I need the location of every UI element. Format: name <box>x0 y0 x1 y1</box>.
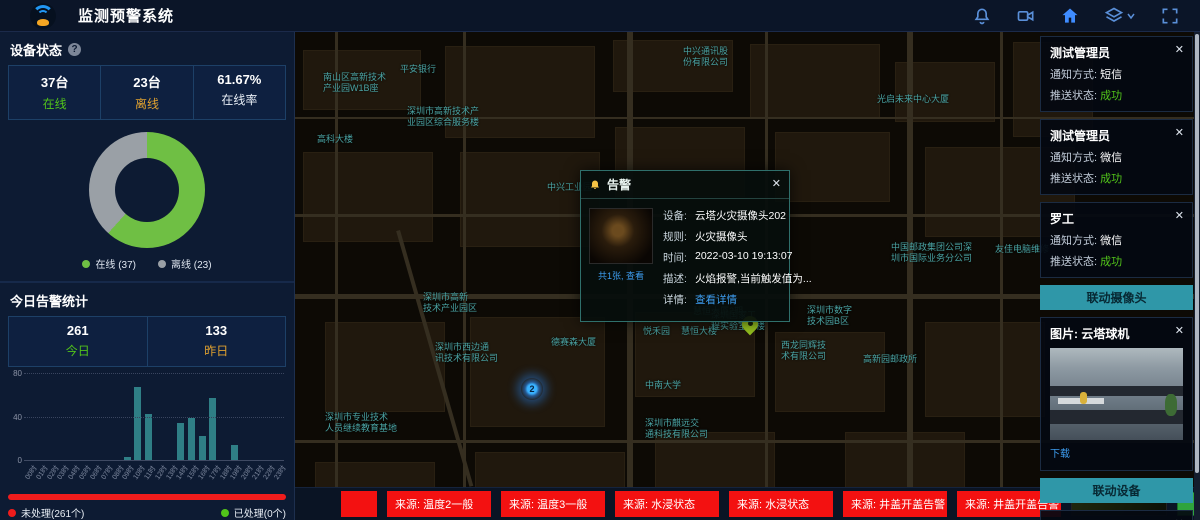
notification-method-row: 通知方式: 微信 <box>1050 149 1183 165</box>
chart-gridline <box>24 373 284 374</box>
hourly-alarm-bar-chart: 80400 <box>24 373 284 461</box>
photo-shape <box>1165 394 1177 416</box>
map-poi-label: 光启未来中心大厦 <box>877 94 949 105</box>
map-poi-label: 中国邮政集团公司深 圳市国际业务分公司 <box>891 242 972 264</box>
field-device: 设备: 云塔火灾摄像头202 <box>663 208 781 223</box>
alert-source-text: 来源: 水浸状态 <box>623 496 695 512</box>
device-status-stats: 37台 在线 23台 离线 61.67% 在线率 <box>8 65 286 120</box>
notification-status-row: 推送状态: 成功 <box>1050 253 1183 269</box>
field-device-value: 云塔火灾摄像头202 <box>695 208 786 223</box>
chevron-down-icon <box>1126 11 1136 21</box>
method-value: 微信 <box>1100 235 1122 247</box>
notification-card: 罗工 ✕ 通知方式: 微信 推送状态: 成功 <box>1040 202 1193 278</box>
legend-offline: 离线 (23) <box>158 256 212 271</box>
status-badge: 成功 <box>1100 90 1122 102</box>
today-alarms-title: 今日告警统计 <box>0 283 294 316</box>
close-icon[interactable]: ✕ <box>1175 43 1184 56</box>
close-icon[interactable]: ✕ <box>1175 324 1184 337</box>
scrollbar-thumb[interactable] <box>1195 34 1199 473</box>
map-block <box>750 44 880 119</box>
legend-online: 在线 (37) <box>82 256 136 271</box>
bar <box>177 423 184 460</box>
map-block <box>460 152 600 247</box>
alarm-popup-titlebar: 告警 ✕ <box>581 171 789 199</box>
map-poi-label: 西龙同辉技 术有限公司 <box>781 340 826 362</box>
bar <box>199 436 206 460</box>
chart-gridline <box>24 417 284 418</box>
field-time-value: 2022-03-10 19:13:07 <box>695 250 793 265</box>
device-cluster-marker[interactable]: 2 <box>521 378 543 400</box>
map-poi-label: 深圳市数字 技术园B区 <box>807 305 852 327</box>
notification-card: 测试管理员 ✕ 通知方式: 微信 推送状态: 成功 <box>1040 119 1193 195</box>
notification-recipient: 罗工 <box>1050 210 1183 227</box>
y-axis-tick: 40 <box>8 413 22 422</box>
stat-online-rate: 61.67% 在线率 <box>194 66 285 119</box>
legend-unprocessed-label: 未处理(261个) <box>21 505 84 520</box>
view-images-link[interactable]: 共1张, 查看 <box>589 269 653 282</box>
stat-today: 261 今日 <box>9 317 148 366</box>
legend-unprocessed: 未处理(261个) <box>8 505 84 520</box>
today-alarms-title-text: 今日告警统计 <box>10 291 88 310</box>
header-bar: 监测预警系统 <box>0 0 1200 32</box>
photo-shape <box>1080 392 1087 404</box>
stat-today-label: 今日 <box>9 342 147 359</box>
legend-processed-label: 已处理(0个) <box>234 505 286 520</box>
alert-source-card[interactable]: 来源: 温度3一般 <box>501 491 605 517</box>
legend-offline-dot <box>158 260 166 268</box>
map-poi-label: 高新园邮政所 <box>863 354 917 365</box>
y-axis-tick: 80 <box>8 369 22 378</box>
alarm-fields: 设备: 云塔火灾摄像头202 规则: 火灾摄像头 时间: 2022-03-10 … <box>663 208 781 313</box>
map-poi-label: 深圳市高新 技术产业园区 <box>423 292 477 314</box>
method-label: 通知方式: <box>1050 152 1100 164</box>
stat-yesterday-label: 昨日 <box>148 342 286 359</box>
stat-offline-value: 23台 <box>101 72 192 91</box>
y-axis-tick: 0 <box>8 456 22 465</box>
linked-camera-header[interactable]: 联动摄像头 <box>1040 285 1193 310</box>
map-block <box>775 132 890 202</box>
map-poi-label: 高科大楼 <box>317 134 353 145</box>
donut-legend: 在线 (37) 离线 (23) <box>0 256 294 271</box>
alert-source-text: 来源: 温度2一般 <box>395 496 473 512</box>
map-poi-label: 南山区高新技术 产业园W1B座 <box>323 72 386 94</box>
map-block <box>925 322 1045 417</box>
right-notification-panel: 测试管理员 ✕ 通知方式: 短信 推送状态: 成功 测试管理员 ✕ 通知方式: … <box>1040 36 1193 520</box>
bar <box>124 457 131 460</box>
map-poi-label: 中南大学 <box>645 380 681 391</box>
processing-legend: 未处理(261个) 已处理(0个) <box>8 505 286 520</box>
map-poi-label: 悦禾园 <box>643 326 670 337</box>
page-title: 监测预警系统 <box>78 5 174 26</box>
status-badge: 成功 <box>1100 256 1122 268</box>
map-poi-label: 深圳市麒远交 通科技有限公司 <box>645 418 708 440</box>
page-scrollbar <box>1194 32 1200 520</box>
notification-method-row: 通知方式: 微信 <box>1050 232 1183 248</box>
camera-snapshot[interactable] <box>1050 348 1183 440</box>
status-badge: 成功 <box>1100 173 1122 185</box>
view-detail-link[interactable]: 查看详情 <box>695 292 737 307</box>
field-device-label: 设备: <box>663 208 695 223</box>
alert-source-text: 来源: 水浸状态 <box>737 496 809 512</box>
info-icon[interactable]: ? <box>68 43 81 56</box>
notification-card: 测试管理员 ✕ 通知方式: 短信 推送状态: 成功 <box>1040 36 1193 112</box>
linked-device-header[interactable]: 联动设备 <box>1040 478 1193 503</box>
device-status-title-text: 设备状态 <box>10 40 62 59</box>
app-root: 监测预警系统 <box>0 0 1200 520</box>
stat-online-label: 在线 <box>9 95 100 112</box>
stat-offline: 23台 离线 <box>101 66 193 119</box>
stat-online-rate-label: 在线率 <box>194 91 285 108</box>
field-time-label: 时间: <box>663 250 695 265</box>
method-label: 通知方式: <box>1050 69 1100 81</box>
map-road <box>335 32 338 520</box>
map-road <box>1000 32 1003 520</box>
donut-hole <box>115 158 179 222</box>
alert-source-text: 来源: 井盖开盖告警 <box>851 496 945 512</box>
alert-source-card[interactable]: 来源: 水浸状态 <box>615 491 719 517</box>
legend-offline-label: 离线 (23) <box>171 256 212 271</box>
status-label: 推送状态: <box>1050 256 1100 268</box>
legend-online-dot <box>82 260 90 268</box>
map-block <box>303 152 433 242</box>
field-time: 时间: 2022-03-10 19:13:07 <box>663 250 781 265</box>
stat-yesterday: 133 昨日 <box>148 317 286 366</box>
alarm-bell-icon <box>589 179 601 191</box>
field-detail: 详情: 查看详情 <box>663 292 781 307</box>
alarm-thumbnail-block: 共1张, 查看 <box>589 208 653 313</box>
close-icon[interactable]: ✕ <box>772 179 781 190</box>
map-poi-label: 平安银行 <box>400 64 436 75</box>
legend-processed: 已处理(0个) <box>221 505 286 520</box>
legend-processed-dot <box>221 509 229 517</box>
bar <box>188 418 195 460</box>
alarm-snapshot-image[interactable] <box>589 208 653 264</box>
legend-online-label: 在线 (37) <box>95 256 136 271</box>
map-poi-label: 深圳市西边通 讯技术有限公司 <box>435 342 498 364</box>
notification-status-row: 推送状态: 成功 <box>1050 87 1183 103</box>
alert-source-card[interactable]: 来源: 水浸状态 <box>729 491 833 517</box>
field-rule-value: 火灾摄像头 <box>695 229 748 244</box>
bar <box>145 414 152 460</box>
map-poi-label: 中兴通讯股 份有限公司 <box>683 46 728 68</box>
legend-unprocessed-dot <box>8 509 16 517</box>
photo-shape <box>1050 410 1183 424</box>
close-icon[interactable]: ✕ <box>1175 126 1184 139</box>
home-icon[interactable] <box>1060 6 1080 26</box>
alarm-popup-body: 共1张, 查看 设备: 云塔火灾摄像头202 规则: 火灾摄像头 时间: 202… <box>581 199 789 321</box>
logo-base <box>37 19 49 26</box>
video-camera-icon[interactable] <box>1016 6 1036 26</box>
field-description: 描述: 火焰报警,当前触发值为... <box>663 271 781 286</box>
bar <box>134 387 141 460</box>
left-stats-panel: 设备状态 ? 37台 在线 23台 离线 61.67% 在线率 在线 (37) <box>0 32 295 520</box>
alert-source-card[interactable]: 来源: 温度2一般 <box>387 491 491 517</box>
field-rule: 规则: 火灾摄像头 <box>663 229 781 244</box>
stat-offline-label: 离线 <box>101 95 192 112</box>
status-label: 推送状态: <box>1050 90 1100 102</box>
field-detail-label: 详情: <box>663 292 695 307</box>
map-road <box>907 32 913 520</box>
photo-shape <box>1050 386 1183 396</box>
unprocessed-progress-bar <box>8 494 286 500</box>
fullscreen-icon[interactable] <box>1160 6 1180 26</box>
alarm-popup-title: 告警 <box>607 176 772 193</box>
map-poi-label: 深圳市专业技术 人员继续教育基地 <box>325 412 397 434</box>
device-status-title: 设备状态 ? <box>0 32 294 65</box>
alert-source-card[interactable]: 来源: 井盖开盖告警 <box>843 491 947 517</box>
stat-online-value: 37台 <box>9 72 100 91</box>
bar-chart-x-axis: 00时01时02时03时04时05时06时07时08时09时10时11时12时1… <box>24 464 284 486</box>
close-icon[interactable]: ✕ <box>1175 209 1184 222</box>
device-status-donut-chart <box>89 132 205 248</box>
notification-recipient: 测试管理员 <box>1050 127 1183 144</box>
field-description-value: 火焰报警,当前触发值为... <box>695 271 812 286</box>
map-poi-label: 深圳市高新技术产 业园区综合服务楼 <box>407 106 479 128</box>
map-block <box>470 317 605 427</box>
stat-online: 37台 在线 <box>9 66 101 119</box>
layers-icon <box>1104 6 1124 26</box>
today-alarms-stats: 261 今日 133 昨日 <box>8 316 286 367</box>
header-icon-group <box>972 6 1200 26</box>
stat-online-rate-value: 61.67% <box>194 72 285 87</box>
layers-menu[interactable] <box>1104 6 1136 26</box>
alert-source-text: 来源: 温度3一般 <box>509 496 587 512</box>
cluster-count: 2 <box>529 384 534 394</box>
device-card: 云塔307声光报警设备 ✕ 设备编码: ffffff100001ab6c 调用服… <box>1040 510 1193 520</box>
bar <box>231 445 238 460</box>
bell-icon[interactable] <box>972 6 992 26</box>
status-label: 推送状态: <box>1050 173 1100 185</box>
app-logo-icon <box>30 3 56 29</box>
map-poi-label: 德赛森大厦 <box>551 337 596 348</box>
camera-card: 图片: 云塔球机 ✕ 下载 <box>1040 317 1193 471</box>
notification-status-row: 推送状态: 成功 <box>1050 170 1183 186</box>
alert-card-partial[interactable] <box>341 491 377 517</box>
download-link[interactable]: 下载 <box>1050 445 1070 460</box>
bar <box>209 398 216 460</box>
stat-today-value: 261 <box>9 323 147 338</box>
notification-method-row: 通知方式: 短信 <box>1050 66 1183 82</box>
stat-yesterday-value: 133 <box>148 323 286 338</box>
method-value: 短信 <box>1100 69 1122 81</box>
alarm-popup: 告警 ✕ 共1张, 查看 设备: 云塔火灾摄像头202 规则: 火灾摄像头 <box>580 170 790 322</box>
method-value: 微信 <box>1100 152 1122 164</box>
field-rule-label: 规则: <box>663 229 695 244</box>
notification-recipient: 测试管理员 <box>1050 44 1183 61</box>
method-label: 通知方式: <box>1050 235 1100 247</box>
camera-card-title: 图片: 云塔球机 <box>1050 325 1183 342</box>
field-description-label: 描述: <box>663 271 695 286</box>
